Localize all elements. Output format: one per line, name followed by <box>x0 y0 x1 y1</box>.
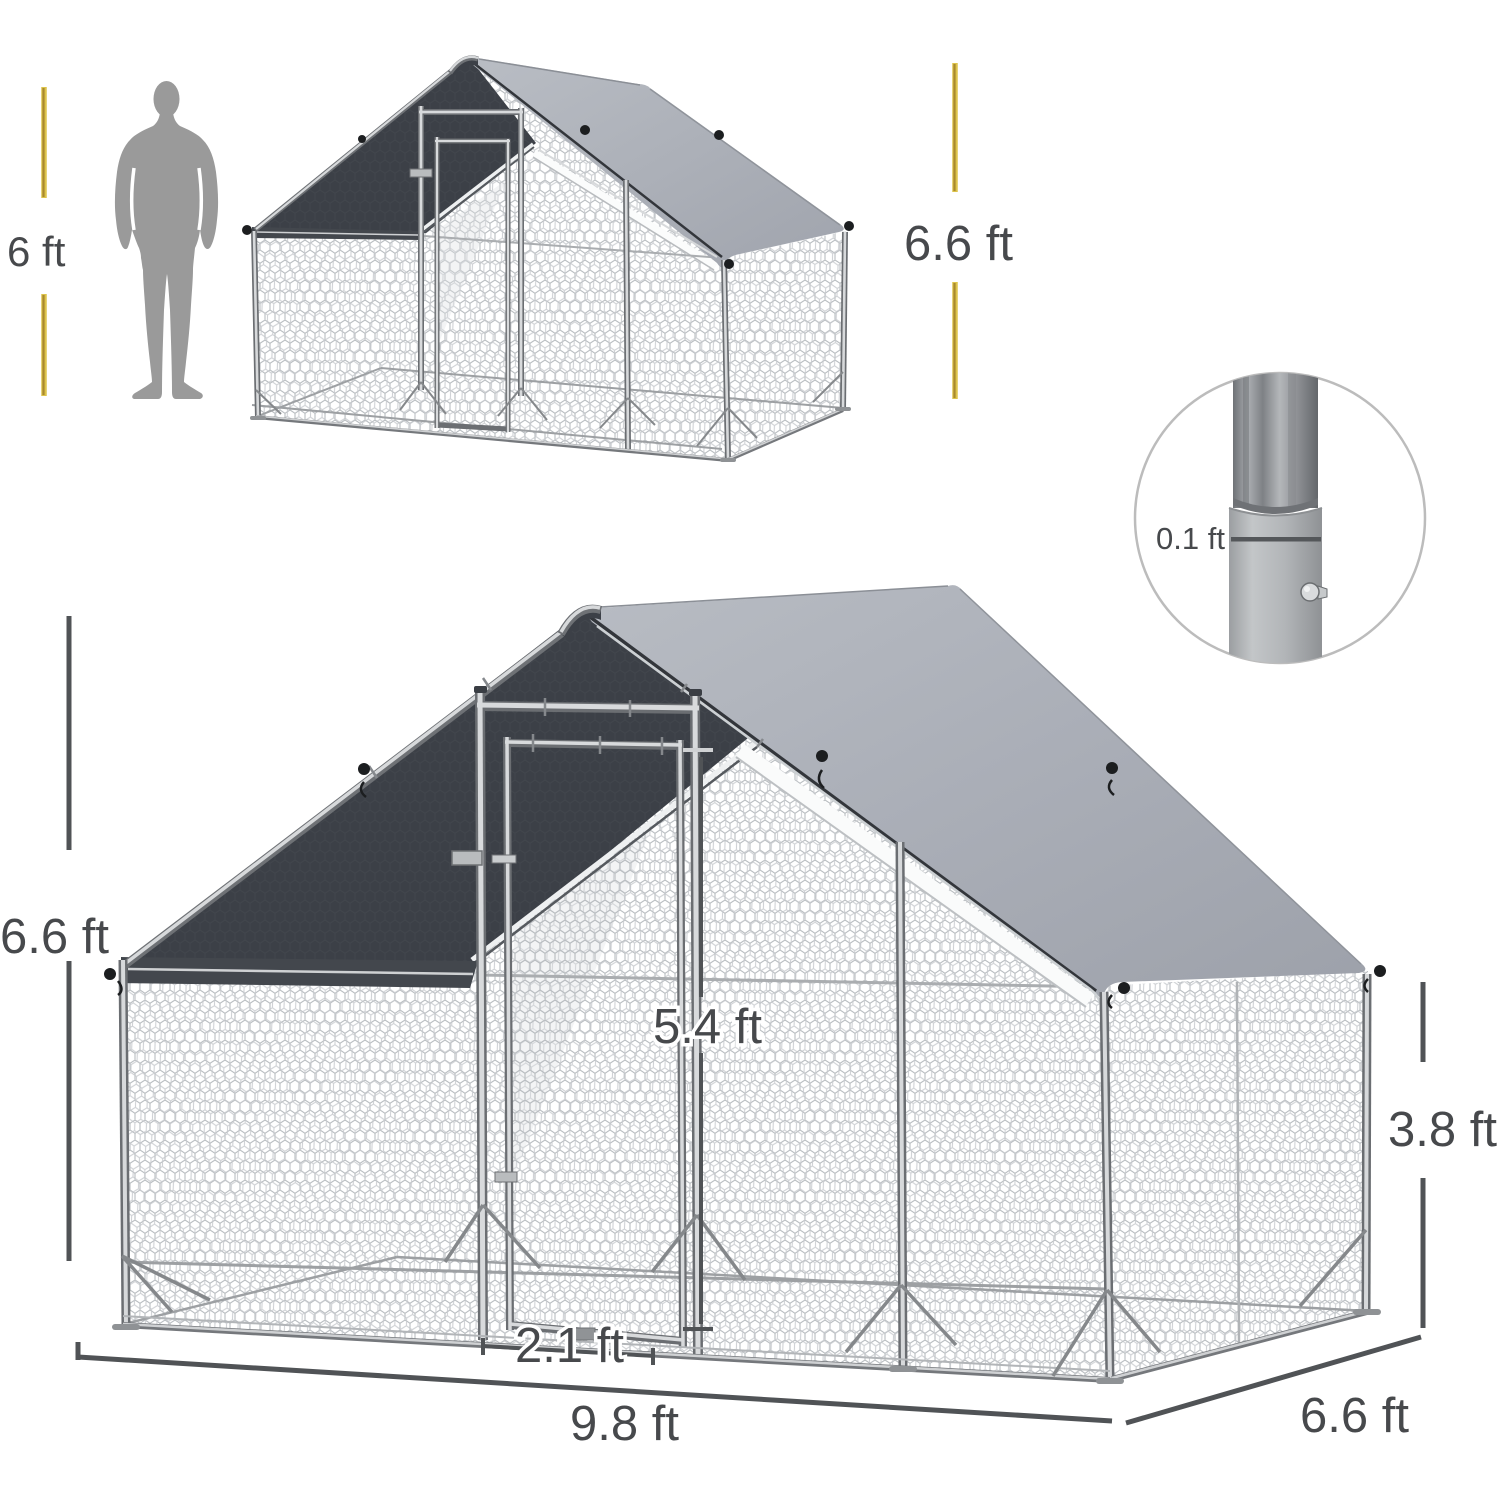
svg-text:0.1 ft: 0.1 ft <box>1156 521 1225 556</box>
svg-text:9.8 ft: 9.8 ft <box>570 1397 679 1451</box>
svg-text:3.8 ft: 3.8 ft <box>1388 1103 1497 1157</box>
svg-text:6.6 ft: 6.6 ft <box>1300 1389 1409 1443</box>
svg-text:6.6 ft: 6.6 ft <box>904 217 1013 271</box>
svg-text:2.1 ft: 2.1 ft <box>515 1319 624 1373</box>
svg-text:6.6 ft: 6.6 ft <box>0 910 109 964</box>
svg-text:5.4 ft: 5.4 ft <box>653 1000 762 1054</box>
svg-text:6 ft: 6 ft <box>7 228 66 275</box>
